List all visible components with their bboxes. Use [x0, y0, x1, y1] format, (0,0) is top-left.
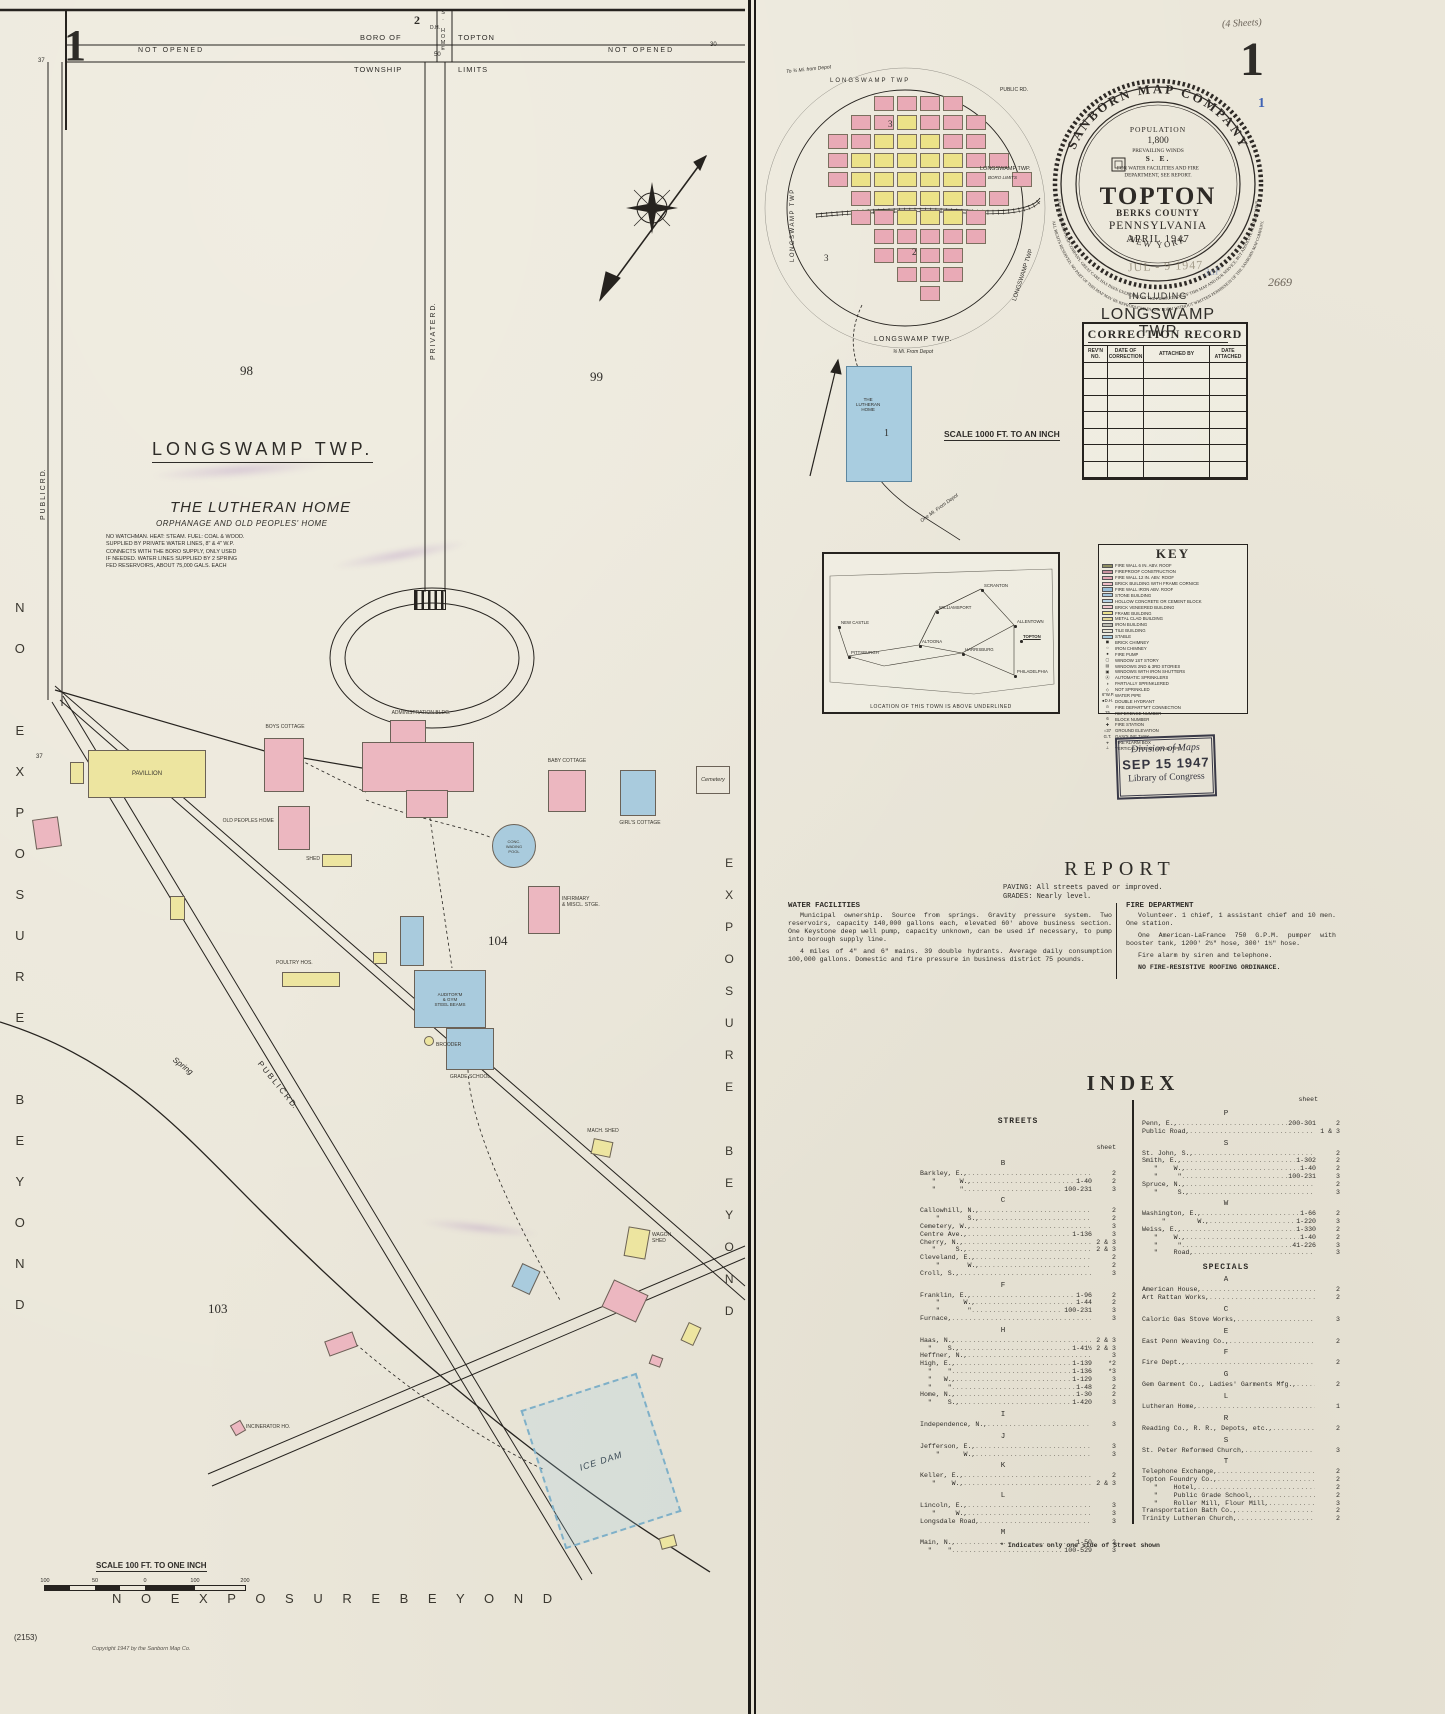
key-swatch — [1102, 570, 1113, 574]
inset-scale-label: SCALE 1000 FT. TO AN INCH — [944, 430, 1060, 441]
scale-tick: 0 — [138, 1578, 152, 1584]
stamp-date: SEP 15 1947 — [1120, 754, 1212, 772]
copyright-line: Copyright 1947 by the Sanborn Map Co. — [92, 1646, 190, 1652]
index-row: Jefferson, E.,3 — [920, 1443, 1116, 1451]
index-row: " "100-2313 — [920, 1186, 1116, 1194]
panel-divider-thin — [754, 0, 756, 1714]
building-label: MACH. SHED — [578, 1128, 628, 1134]
index-row: Art Rattan Works,2 — [1142, 1294, 1340, 1302]
index-letter: C — [920, 1197, 1086, 1205]
index-row: " W.,1-402 — [1142, 1165, 1340, 1173]
scale-tick: 200 — [238, 1578, 252, 1584]
inset-block — [920, 172, 940, 187]
block-numeral-2: 2 — [414, 14, 420, 27]
key-swatch — [1102, 599, 1113, 603]
index-row: " W.,3 — [920, 1451, 1116, 1459]
index-row: " S.,1-4203 — [920, 1399, 1116, 1407]
township-title: LONGSWAMP TWP. — [152, 440, 373, 463]
index-row: Washington, E.,1-662 — [1142, 1210, 1340, 1218]
water-paragraph-1: Municipal ownership. Source from springs… — [788, 912, 1112, 944]
key-item-label: NOT SPRINKLED — [1115, 687, 1150, 692]
index-specials-header: SPECIALS — [1142, 1263, 1310, 1272]
key-item-label: TILE BUILDING — [1115, 628, 1146, 633]
key-item-label: FIRE WALL 6 IN. ABV. ROOF — [1115, 563, 1172, 568]
key-swatch — [1102, 617, 1113, 621]
key-swatch — [1102, 587, 1113, 591]
inset-public-rd: PUBLIC RD. — [1000, 88, 1028, 94]
index-row: Spruce, N.,2 — [1142, 1181, 1340, 1189]
scale-tick: 100 — [38, 1578, 52, 1584]
lutheran-home-subtitle: ORPHANAGE AND OLD PEOPLES' HOME — [156, 520, 327, 529]
index-row: Longsdale Road,3 — [920, 1518, 1116, 1526]
report-paving-grades: PAVING: All streets paved or improved. G… — [1003, 884, 1163, 902]
inset-block — [920, 248, 940, 263]
inset-block — [874, 153, 894, 168]
building-label: WAGON SHED — [652, 1232, 692, 1244]
inset-block — [851, 134, 871, 149]
inset-block — [920, 191, 940, 206]
correction-record-row — [1084, 412, 1246, 428]
inset-lutheran-home-label: THE LUTHERAN HOME — [856, 398, 880, 413]
index-title: INDEX — [1063, 1072, 1203, 1095]
key-item-label: GROUND ELEVATION — [1115, 728, 1159, 733]
index-row: Cleveland, E.,2 — [920, 1254, 1116, 1262]
inset-block — [920, 115, 940, 130]
inset-block — [943, 267, 963, 282]
city-dot — [1014, 625, 1017, 628]
key-symbol: ◇ — [1102, 688, 1113, 692]
key-swatch — [1102, 593, 1113, 597]
inset-block — [920, 210, 940, 225]
seal-state: PENNSYLVANIA — [1109, 220, 1207, 232]
city-dot — [919, 645, 922, 648]
key-symbol: ▣ — [1102, 670, 1113, 674]
inset-lutheran-tract — [846, 366, 912, 482]
index-row: " S.,2 — [920, 1215, 1116, 1223]
building — [400, 916, 424, 966]
inset-block — [966, 210, 986, 225]
index-row: " S.,3 — [1142, 1189, 1340, 1197]
index-row: Transportation Bath Co.,2 — [1142, 1507, 1340, 1515]
building — [620, 770, 656, 816]
correction-record-row — [1084, 429, 1246, 445]
key-symbol: ◼ — [1102, 640, 1113, 644]
city-label: PHILADELPHIA — [1017, 669, 1048, 674]
index-row: Cemetery, W.,3 — [920, 1223, 1116, 1231]
index-sheet-label-left: sheet — [1080, 1144, 1116, 1151]
plate-number: (2153) — [14, 1634, 37, 1643]
col-revn-no: REV'N NO. — [1084, 346, 1108, 362]
index-row: Croll, S.,3 — [920, 1270, 1116, 1278]
index-row: Gem Garment Co., Ladies' Garments Mfg.,2 — [1142, 1381, 1340, 1389]
key-symbol: ✚ — [1102, 723, 1113, 727]
seal-city: TOPTON — [1100, 183, 1217, 210]
edge-text-right: EXPOSURE BEYOND — [722, 856, 735, 1436]
sheet-number-blue: 1 — [1258, 96, 1265, 111]
index-letter: C — [1142, 1306, 1310, 1314]
received-scribble: 3aF — [1203, 265, 1222, 279]
inset-block — [874, 248, 894, 263]
index-row: Topton Foundry Co.,2 — [1142, 1476, 1340, 1484]
key-item-label: FRAME BUILDING — [1115, 611, 1152, 616]
inset-block — [897, 229, 917, 244]
key-symbol: ⊥ — [1102, 746, 1113, 750]
key-item-label: FIRE WALL IRON ABV. ROOF — [1115, 587, 1173, 592]
building: PAVILLION — [88, 750, 206, 798]
key-swatch — [1102, 576, 1113, 580]
township-label: TOWNSHIP — [354, 66, 402, 74]
index-letter: J — [920, 1433, 1086, 1441]
inset-block — [897, 267, 917, 282]
index-letter: L — [1142, 1393, 1310, 1401]
inset-block — [874, 210, 894, 225]
city-label: PITTSBURGH — [851, 650, 879, 655]
private-rd-label: P R I V A T E R D. — [430, 304, 438, 360]
inset-block — [943, 191, 963, 206]
index-row: " Road,3 — [1142, 1249, 1340, 1257]
inset-longswamp-left: LONGSWAMP TWP — [790, 188, 797, 262]
index-row: Heffner, N.,3 — [920, 1352, 1116, 1360]
building — [278, 806, 310, 850]
index-letter: P — [1142, 1110, 1310, 1118]
building — [406, 790, 448, 818]
inset-longswamp-right: LONGSWAMP TWP. — [980, 166, 1031, 172]
seal-population-label: POPULATION — [1130, 125, 1186, 134]
city-label: SCRANTON — [984, 583, 1008, 588]
key-item-label: FIRE STATION — [1115, 722, 1144, 727]
inset-numeral-3b: 3 — [824, 254, 829, 264]
index-row: Caloric Gas Stove Works,3 — [1142, 1316, 1340, 1324]
index-row: Fire Dept.,2 — [1142, 1359, 1340, 1367]
index-row: Furnace,3 — [920, 1315, 1116, 1323]
water-facilities-title: WATER FACILITIES — [788, 902, 1112, 910]
key-item-label: FIRE WALL 12 IN. ABV. ROOF — [1115, 575, 1174, 580]
index-footnote: * Indicates only one side of Street show… — [925, 1542, 1235, 1549]
building-label: BOYS COTTAGE — [240, 724, 330, 730]
block-number-104: 104 — [488, 934, 508, 948]
inset-block — [943, 248, 963, 263]
lutheran-home-title: THE LUTHERAN HOME — [170, 500, 351, 517]
index-letter: B — [920, 1160, 1086, 1168]
index-letter: S — [1142, 1437, 1310, 1445]
index-row: Callowhill, N.,2 — [920, 1207, 1116, 1215]
inset-longswamp-top: LONGSWAMP TWP — [830, 78, 910, 85]
building — [362, 742, 474, 792]
inset-block — [897, 96, 917, 111]
city-label: WILLIAMSPORT — [939, 605, 971, 610]
fire-paragraph-1: Volunteer. 1 chief, 1 assistant chief an… — [1126, 912, 1336, 928]
index-letter: W — [1142, 1200, 1310, 1208]
scale-tick: 100 — [188, 1578, 202, 1584]
index-row: St. John, S.,2 — [1142, 1150, 1340, 1158]
report-fire-department: FIRE DEPARTMENT Volunteer. 1 chief, 1 as… — [1126, 902, 1336, 976]
road-width-30: 30 — [710, 42, 717, 49]
index-letter: M — [920, 1529, 1086, 1537]
building — [282, 972, 340, 987]
index-row: " "100-2313 — [1142, 1173, 1340, 1181]
stamp-library: Library of Congress — [1120, 771, 1212, 784]
key-swatch — [1102, 582, 1113, 586]
index-row: Lutheran Home,1 — [1142, 1403, 1340, 1411]
key-symbol: ○ — [1102, 646, 1113, 650]
city-dot — [962, 653, 965, 656]
key-symbol: ● — [1102, 652, 1113, 656]
index-row: Trinity Lutheran Church,2 — [1142, 1515, 1340, 1523]
key-item-label: AUTOMATIC SPRINKLERS — [1115, 675, 1168, 680]
inset-depot-note-mid: ⅜ Mi. From Depot — [893, 350, 933, 356]
key-item-label: HOLLOW CONCRETE OR CEMENT BLOCK — [1115, 599, 1202, 604]
city-label: NEW CASTLE — [841, 620, 869, 625]
topton-label: TOPTON — [458, 34, 495, 42]
fire-department-title: FIRE DEPARTMENT — [1126, 902, 1336, 910]
city-label: HARRISBURG — [965, 647, 994, 652]
inset-block — [851, 172, 871, 187]
key-item-label: STONE BUILDING — [1115, 593, 1151, 598]
building-label: BROODER — [436, 1042, 476, 1048]
inset-block — [966, 191, 986, 206]
inset-block — [874, 134, 894, 149]
index-row: High, E.,1-139*2 — [920, 1360, 1116, 1368]
block-number-98: 98 — [240, 364, 253, 378]
index-right-column: PPenn, E.,200-3012Public Road,1 & 3SSt. … — [1142, 1106, 1340, 1523]
not-opened-label: NOT OPENED — [138, 47, 204, 55]
index-row: Home, N.,1-302 — [920, 1391, 1116, 1399]
index-row: " S.,1-41½2 & 3 — [920, 1345, 1116, 1353]
location-map-caption: LOCATION OF THIS TOWN IS ABOVE UNDERLINE… — [824, 704, 1058, 710]
index-letter: G — [1142, 1371, 1310, 1379]
inset-block — [943, 153, 963, 168]
inset-block — [874, 191, 894, 206]
building — [424, 1036, 434, 1046]
edge-text-left: NO EXPOSURE BEYOND — [12, 600, 26, 1560]
index-row: St. Peter Reformed Church,3 — [1142, 1447, 1340, 1455]
key-symbol: 6 — [1102, 717, 1113, 721]
index-row: Independence, N.,3 — [920, 1421, 1116, 1429]
index-row: American House,2 — [1142, 1286, 1340, 1294]
sheets-note: (4 Sheets) — [1222, 17, 1262, 30]
key-swatch — [1102, 635, 1113, 639]
index-row: " W.,2 — [920, 1262, 1116, 1270]
building-label: INFIRMARY & MISCL. STGE. — [562, 896, 626, 908]
key-symbol: ⊙ — [1102, 705, 1113, 709]
inset-block — [920, 229, 940, 244]
key-swatch — [1102, 605, 1113, 609]
fire-paragraph-4: NO FIRE-RESISTIVE ROOFING ORDINANCE. — [1126, 964, 1336, 972]
dh-marker: D.H. — [430, 26, 440, 32]
key-symbol: ▢ — [1102, 658, 1113, 662]
key-title: KEY — [1099, 545, 1247, 562]
building — [528, 886, 560, 934]
inset-block — [943, 229, 963, 244]
inset-block — [851, 210, 871, 225]
inset-block — [897, 115, 917, 130]
index-row: Franklin, E.,1-962 — [920, 1292, 1116, 1300]
key-swatch — [1102, 564, 1113, 568]
correction-record-row — [1084, 396, 1246, 412]
limits-label: LIMITS — [458, 66, 488, 74]
inset-block — [874, 172, 894, 187]
building — [446, 1028, 494, 1070]
key-item-label: IRON CHIMNEY — [1115, 646, 1147, 651]
col-date-attached: DATE ATTACHED — [1210, 346, 1246, 362]
index-letter: F — [1142, 1349, 1310, 1357]
inset-block — [920, 134, 940, 149]
seal-note-line2: DEPARTMENT, SEE REPORT. — [1124, 173, 1191, 179]
block-number-103: 103 — [208, 1302, 228, 1316]
building: Cemetery — [696, 766, 730, 794]
index-letter: K — [920, 1462, 1086, 1470]
inset-block — [920, 153, 940, 168]
key-item-label: METAL CLAD BUILDING — [1115, 616, 1163, 621]
water-paragraph-2: 4 miles of 4" and 6" mains. 39 double hy… — [788, 948, 1112, 964]
building — [70, 762, 84, 784]
inset-block — [943, 115, 963, 130]
index-letter: R — [1142, 1415, 1310, 1423]
index-row: Barkley, E.,2 — [920, 1170, 1116, 1178]
index-row: " "1-136*3 — [920, 1368, 1116, 1376]
key-item-label: STABLE — [1115, 634, 1131, 639]
key-symbol: Ⓐ — [1102, 676, 1113, 680]
inset-block — [897, 191, 917, 206]
index-row: Reading Co., R. R., Depots, etc.,2 — [1142, 1425, 1340, 1433]
report-column-divider — [1116, 903, 1117, 979]
index-letter: T — [1142, 1458, 1310, 1466]
public-rd-label: P U B L I C R D. — [40, 469, 48, 520]
ground-elevation: 37 — [38, 58, 45, 65]
index-letter: F — [920, 1282, 1086, 1290]
city-label: TOPTON — [1023, 634, 1041, 639]
road-width-50: 50 — [434, 52, 441, 59]
inset-block — [874, 96, 894, 111]
index-row: " W.,2 & 3 — [920, 1480, 1116, 1488]
inset-block — [897, 172, 917, 187]
inset-block — [851, 115, 871, 130]
key-item-label: IRON BUILDING — [1115, 622, 1147, 627]
city-dot — [838, 626, 841, 629]
index-letter: E — [1142, 1328, 1310, 1336]
scale-label: SCALE 100 FT. TO ONE INCH — [96, 1562, 207, 1572]
key-symbol: 6"W.P. — [1102, 693, 1113, 697]
index-row: Public Road,1 & 3 — [1142, 1128, 1340, 1136]
building-label: SHED — [296, 856, 320, 862]
report-title: REPORT — [1055, 858, 1185, 880]
inset-block — [828, 134, 848, 149]
inset-block — [851, 191, 871, 206]
inset-block — [897, 210, 917, 225]
correction-record-row — [1084, 462, 1246, 478]
library-stamp: Division of Maps SEP 15 1947 Library of … — [1115, 734, 1217, 799]
campus-steps — [414, 590, 446, 610]
lutheran-home-description: NO WATCHMAN. HEAT: STEAM. FUEL: COAL & W… — [106, 534, 244, 570]
building-label: INCINERATOR HO. — [246, 1424, 316, 1430]
col-attached-by: ATTACHED BY — [1144, 346, 1210, 362]
index-letter: S — [1142, 1140, 1310, 1148]
fire-paragraph-2: One American-LaFrance 750 G.P.M. pumper … — [1126, 932, 1336, 948]
inset-block — [920, 267, 940, 282]
city-dot — [848, 656, 851, 659]
city-label: ALTOONA — [922, 639, 942, 644]
city-label: ALLENTOWN — [1017, 619, 1044, 624]
location-map: NEW CASTLEPITTSBURGHALTOONAWILLIAMSPORTS… — [822, 552, 1060, 714]
index-letter: H — [920, 1327, 1086, 1335]
building — [390, 720, 426, 744]
index-streets-header: STREETS — [920, 1118, 1116, 1127]
not-opened-label: NOT OPENED — [608, 47, 674, 55]
inset-block — [943, 210, 963, 225]
building-label: POULTRY HOS. — [276, 960, 346, 966]
key-item-label: WINDOWS 2ND & 3RD STORIES — [1115, 664, 1180, 669]
seal-population-value: 1,800 — [1147, 136, 1169, 146]
city-dot — [1020, 640, 1023, 643]
inset-numeral-2: 2 — [912, 248, 917, 258]
stamp-division: Division of Maps — [1119, 741, 1211, 755]
key-symbol: ○37 — [1102, 729, 1113, 733]
ice-dam-label: ICE DAM — [578, 1449, 623, 1472]
block-number-99: 99 — [590, 370, 603, 384]
handwritten-number: 2669 — [1268, 276, 1292, 289]
index-row: " "100-2313 — [920, 1307, 1116, 1315]
inset-block — [828, 153, 848, 168]
seal-county: BERKS COUNTY — [1116, 208, 1200, 218]
index-row: " W.,1-2203 — [1142, 1218, 1340, 1226]
index-row: Weiss, E.,1-3302 — [1142, 1226, 1340, 1234]
sheet-number-left: 1 — [64, 22, 86, 70]
report-water-facilities: WATER FACILITIES Municipal ownership. So… — [788, 902, 1112, 968]
index-row: " "41-2263 — [1142, 1242, 1340, 1250]
col-date-of-correction: DATE OF CORRECTION — [1108, 346, 1144, 362]
inset-block — [966, 115, 986, 130]
inset-block — [943, 172, 963, 187]
including-block: INCLUDING LONGSWAMP TWP — [1088, 286, 1228, 343]
inset-block — [920, 286, 940, 301]
received-date-stamp: JUL - 9 1947 — [1128, 259, 1204, 275]
inset-block — [828, 172, 848, 187]
inset-block — [897, 134, 917, 149]
building — [170, 896, 185, 920]
inset-block — [920, 96, 940, 111]
index-row: Telephone Exchange,2 — [1142, 1468, 1340, 1476]
inset-block — [897, 153, 917, 168]
key-item-label: BRICK CHIMNEY — [1115, 640, 1149, 645]
index-row: " Roller Mill, Flour Mill,3 — [1142, 1500, 1340, 1508]
building — [32, 816, 62, 849]
index-row: " W.,1-442 — [920, 1299, 1116, 1307]
index-row: " S.,2 & 3 — [920, 1246, 1116, 1254]
index-row: " W.,1-402 — [920, 1178, 1116, 1186]
sanborn-map-sheet: 1 37 37 NOT OPENED NOT OPENED BORO OF TO… — [0, 0, 1445, 1714]
inset-numeral-3a: 3 — [888, 120, 893, 130]
panel-divider — [748, 0, 751, 1714]
inset-block — [966, 229, 986, 244]
index-letter: A — [1142, 1276, 1310, 1284]
index-row: " W.,1-402 — [1142, 1234, 1340, 1242]
index-row: Centre Ave.,1-1363 — [920, 1231, 1116, 1239]
key-item-label: DOUBLE HYDRANT — [1115, 699, 1155, 704]
building-label: GRADE SCHOOL — [430, 1074, 510, 1080]
fire-paragraph-3: Fire alarm by siren and telephone. — [1126, 952, 1336, 960]
key-swatch — [1102, 623, 1113, 627]
key-symbol: ⌖ — [1102, 741, 1113, 745]
building-label: OLD PEOPLES HOME — [216, 818, 274, 824]
building-label: GIRL'S COTTAGE — [600, 820, 680, 826]
correction-record-row — [1084, 379, 1246, 395]
index-row: Keller, E.,2 — [920, 1472, 1116, 1480]
key-item-label: FIRE PUMP — [1115, 652, 1138, 657]
key-symbol: 25 — [1102, 711, 1113, 715]
index-sheet-label-right: sheet — [1282, 1096, 1318, 1103]
inset-block — [989, 191, 1009, 206]
inset-block — [966, 172, 986, 187]
